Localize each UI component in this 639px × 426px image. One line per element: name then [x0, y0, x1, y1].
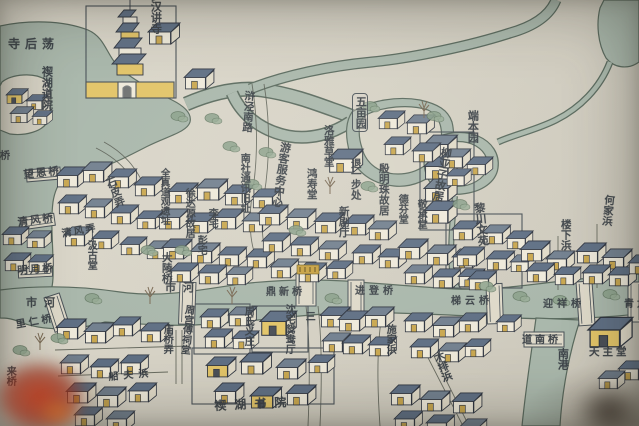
tianzhu-tang-label: 天主堂 [589, 347, 630, 359]
liuyazi-guju-label: 柳亚子故居 [430, 146, 452, 202]
xihu-daoyuan-label: 禊湖道院 [40, 66, 52, 100]
jingcheng-tang-label: 敬承堂 [415, 199, 426, 229]
jigu-tang-label: 汲古堂 [85, 240, 96, 270]
nanshe-site-label: 南社通讯旧址 [238, 153, 249, 213]
louxia-bang-label: 楼下浜 [559, 219, 571, 251]
nangang-river-label: 南港 [556, 348, 568, 370]
san-road-label: 三 [303, 311, 314, 321]
shihe-river-west-label: 市河 [26, 297, 62, 309]
lichuan-wenyuan-label: 黎川文苑 [472, 202, 489, 247]
luohan-jiangsi-label: 罗汉讲寺 [149, 0, 161, 34]
miaoqiao-long-label: 庙桥弄 [161, 324, 172, 354]
zhoushi-yizhuang-label: 周氏义庄 [242, 306, 253, 346]
shipi-long-label: 石皮弄 [103, 176, 126, 210]
yingxiang-bridge-label: 迎祥桥 [543, 299, 585, 310]
xudayuan-guju-label: 徐达源故居 [183, 188, 194, 238]
hujing-south-road-label: 浒泾南路 [240, 90, 255, 133]
liren-bridge-label: 里仁桥 [15, 313, 55, 331]
chuanfu-bang-label: 船夫浜 [108, 368, 154, 383]
hongshou-tang-label: 鸿寿堂 [305, 168, 317, 200]
tuiyibu-chu-label: 退一步处 [349, 158, 361, 200]
painted-town-map-photo: 寺后荡禊湖道院罗汉讲寺浒泾南路五亩园南社通讯旧址游客服务中心洛雅草堂鸿寿堂退一步… [0, 0, 639, 426]
mingyue-bridge-label: 明月桥 [17, 263, 55, 277]
li-zhai-label: 李宅 [206, 208, 217, 228]
shihe-river-label: 市河 [165, 282, 201, 294]
visitor-center-label: 游客服务中心 [270, 141, 291, 208]
defen-tang-label: 德芬堂 [396, 194, 407, 224]
quanzhen-daoguan-site-label: 全真道观遗址 [158, 168, 169, 225]
bridge-partial-west-label: 桥 [0, 151, 10, 162]
duanben-garden-label: 端本园 [466, 110, 478, 143]
jindeng-bridge-label: 进登桥 [355, 286, 397, 297]
yinmingzhu-guju-label: 殷明珠故居 [377, 163, 389, 216]
daling-bridge-label: 大陵桥 [160, 252, 172, 284]
luoya-caotang-label: 洛雅草堂 [322, 125, 334, 167]
dark-corner-shadow [564, 376, 639, 426]
qingfeng-long-label: 清风弄 [61, 223, 98, 240]
mupai-bang-label: 木排浜 [431, 350, 453, 384]
shijia-bang-label: 施家浜 [384, 324, 395, 354]
zhougongfu-citang-label: 周宫傅祠堂 [178, 304, 194, 355]
xinju-ting-label: 新剧厅 [337, 206, 349, 238]
dingxin-bridge-label: 鼎新桥 [266, 287, 305, 298]
qingfeng-bridge-label: 清风桥 [17, 213, 56, 230]
qinglong-bridge-label: 青龙桥 [624, 299, 639, 310]
shenzhai-yuanyang-ting-label: 沈宅鸳鸯厅 [283, 304, 294, 354]
sihoudang-lake-label: 寺后荡 [8, 38, 59, 51]
tiyun-bridge-label: 梯云桥 [451, 296, 493, 307]
hejia-bang-label: 何家浜 [600, 194, 615, 227]
wangen-bridge-label: 望恩桥 [23, 166, 62, 182]
autumn-leaves-blur-small [28, 392, 88, 426]
xihu-shuyuan-label: 禊湖书院 [214, 396, 295, 414]
daonan-bridge-label: 道南桥 [522, 335, 561, 346]
peng-zhai-label: 彭宅 [195, 235, 206, 255]
wumu-garden-label: 五亩园 [352, 93, 368, 132]
